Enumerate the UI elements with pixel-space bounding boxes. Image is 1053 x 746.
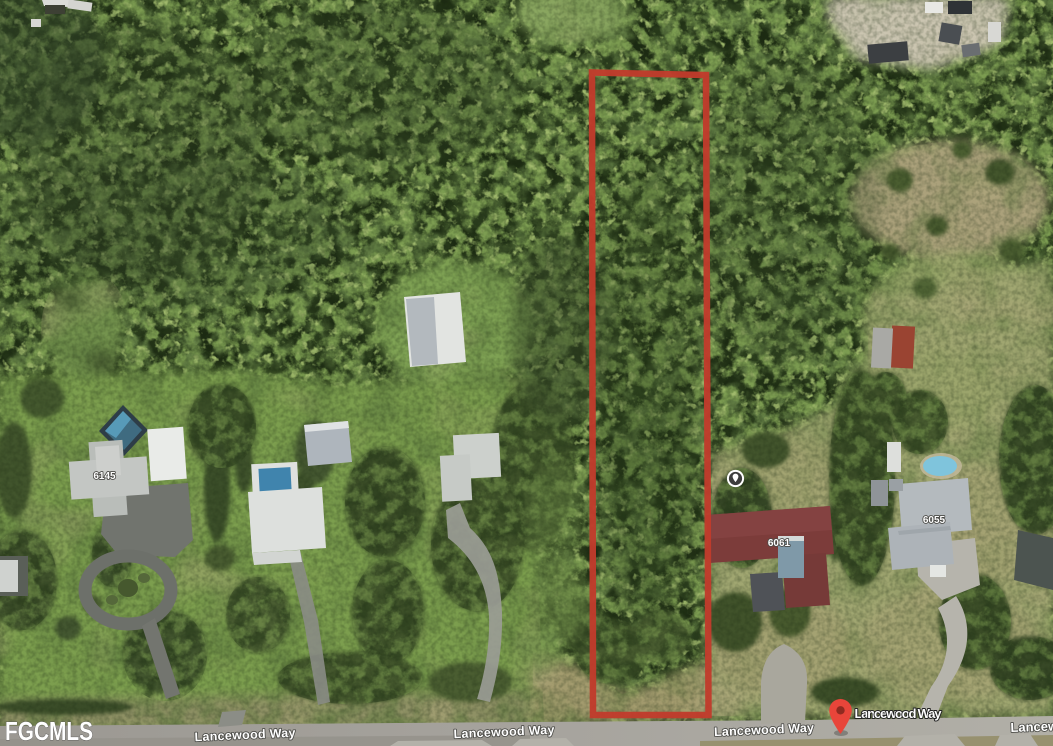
svg-text:Lancewo: Lancewo <box>1010 718 1053 735</box>
svg-text:6061: 6061 <box>768 538 791 549</box>
svg-text:6055: 6055 <box>923 515 946 526</box>
svg-text:FGCMLS: FGCMLS <box>5 716 93 746</box>
svg-text:Lancewood Way: Lancewood Way <box>855 706 943 721</box>
svg-text:6145: 6145 <box>93 471 116 482</box>
